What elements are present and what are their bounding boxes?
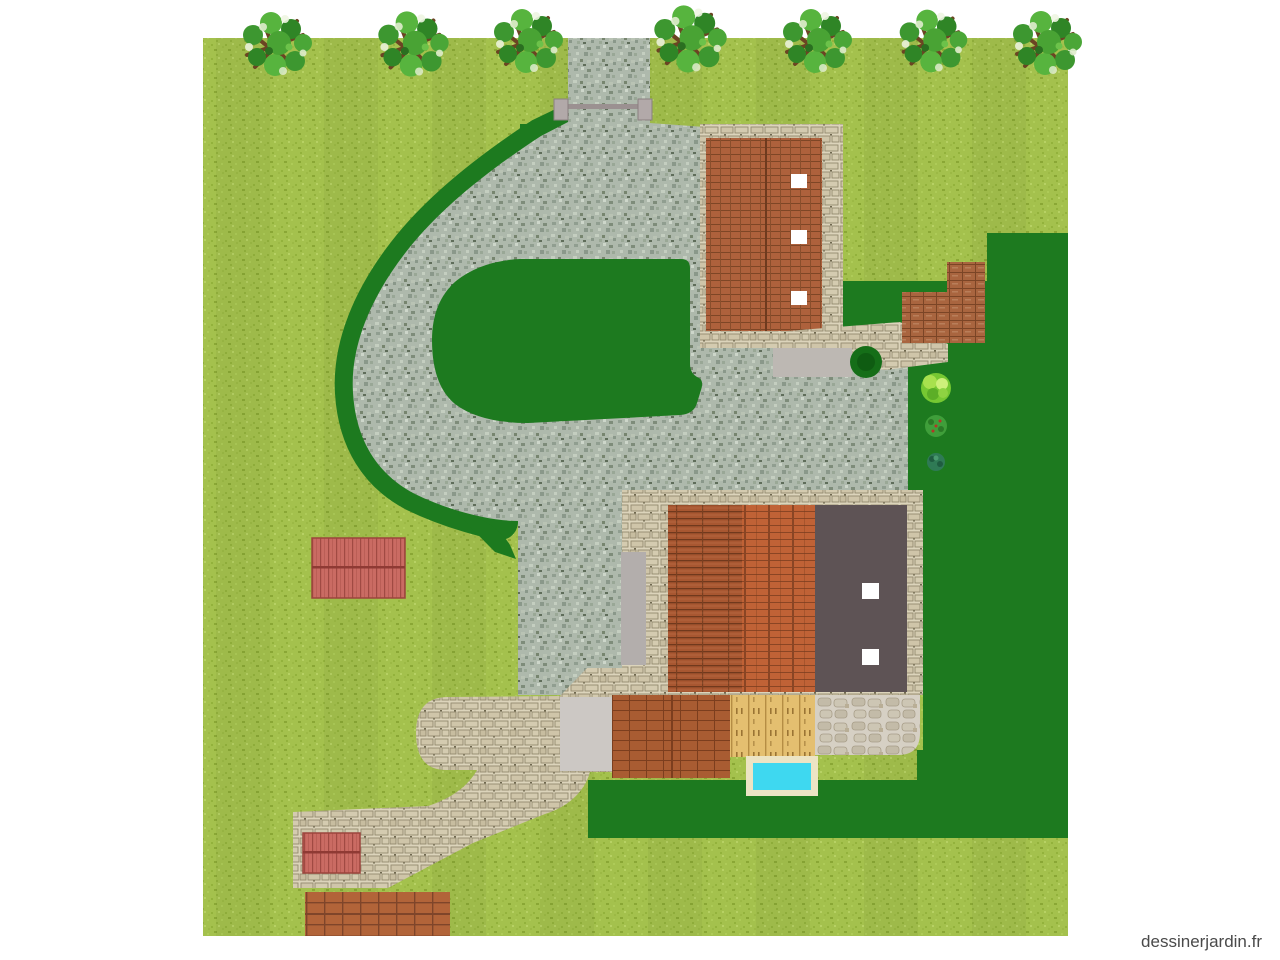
concrete-pad — [773, 348, 852, 377]
tree — [900, 10, 968, 73]
garden-plan-drawing: dessinerjardin.fr — [0, 0, 1280, 960]
entrance-gate-bar — [568, 104, 638, 109]
tree — [378, 11, 448, 76]
entrance-gate-post-right — [638, 99, 652, 120]
tree — [783, 9, 852, 73]
brick-steps-upper — [947, 262, 985, 292]
dark-lawn-bottom-band — [588, 780, 1068, 838]
dark-lawn-house-right — [923, 490, 987, 792]
terrace-paving-bottom — [305, 892, 450, 936]
small-dark-bush — [927, 453, 945, 471]
house-skylight-2 — [862, 649, 879, 665]
dark-lawn-right-column — [987, 233, 1068, 837]
garden-plan-canvas: dessinerjardin.fr — [0, 0, 1280, 960]
garage-skylight-2 — [791, 230, 807, 244]
driveway-island — [432, 259, 702, 423]
dark-lawn-corner — [917, 750, 987, 792]
house-roof-flat — [815, 505, 907, 692]
wood-deck — [730, 695, 815, 757]
garage-skylight-1 — [791, 174, 807, 188]
red-shed-bottom-left — [303, 833, 360, 873]
berry-bush — [925, 415, 947, 437]
tree — [243, 12, 312, 76]
dark-lawn-mid — [908, 345, 987, 490]
forecourt-pad — [560, 697, 612, 771]
tree — [1013, 11, 1082, 75]
garage-roof-divider — [765, 138, 767, 331]
entrance-gate-post-left — [554, 99, 568, 120]
bright-bush — [921, 373, 951, 403]
house-roof-left — [668, 505, 742, 692]
pool-water — [753, 763, 811, 790]
tree — [494, 9, 563, 73]
watermark-text: dessinerjardin.fr — [1141, 932, 1262, 951]
red-shed-left — [312, 538, 405, 598]
house-skylight-1 — [862, 583, 879, 599]
brick-steps-lower — [902, 292, 985, 343]
garage-roof-left — [706, 138, 766, 331]
round-tree-core — [857, 353, 875, 371]
house-side-path — [621, 552, 646, 665]
tree — [654, 5, 726, 72]
house-roof-mid — [742, 505, 815, 692]
garage-skylight-3 — [791, 291, 807, 305]
cobble-terrace — [815, 695, 920, 755]
patio-seam — [671, 695, 673, 778]
